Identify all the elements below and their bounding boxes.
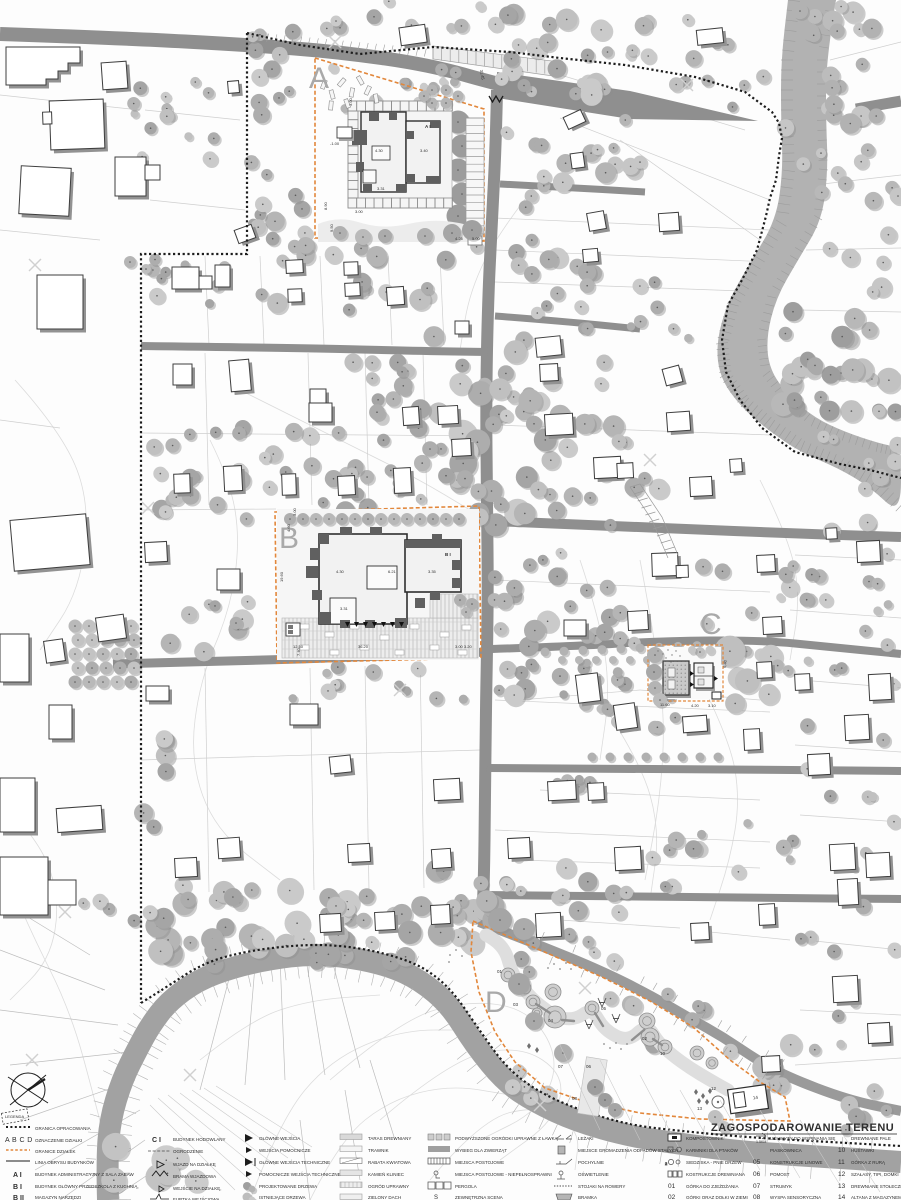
svg-text:4.30: 4.30 [375, 148, 384, 153]
svg-text:07: 07 [753, 1183, 761, 1190]
svg-text:KOSTRUKCJE DREWNIANA: KOSTRUKCJE DREWNIANA [686, 1172, 745, 1177]
svg-text:GÓRKA DO ZJEŻDŻANIA: GÓRKA DO ZJEŻDŻANIA [686, 1183, 739, 1189]
svg-text:SIEDZISKA - PNIE DRZEW: SIEDZISKA - PNIE DRZEW [686, 1160, 742, 1165]
svg-text:UCHWYTY DO WSPINANIA SIĘ: UCHWYTY DO WSPINANIA SIĘ [770, 1136, 835, 1141]
svg-text:GŁÓWNE WEJŚCIA TECHNICZNE: GŁÓWNE WEJŚCIA TECHNICZNE [259, 1158, 330, 1165]
svg-text:-1.00: -1.00 [330, 141, 340, 146]
svg-text:OŚWIETLENIE: OŚWIETLENIE [578, 1170, 609, 1177]
svg-text:ISTNIEJĄCE DRZEWA: ISTNIEJĄCE DRZEWA [259, 1195, 306, 1200]
svg-text:07: 07 [558, 1064, 564, 1069]
svg-text:LINIA OBRYSU BUDYNKÓW: LINIA OBRYSU BUDYNKÓW [35, 1159, 95, 1165]
svg-text:HUŚTAWKI: HUŚTAWKI [851, 1146, 874, 1153]
svg-text:OGRÓD UPRAWNY: OGRÓD UPRAWNY [368, 1183, 409, 1189]
svg-text:PERGOLA: PERGOLA [455, 1184, 477, 1189]
svg-text:OGRODZENIE: OGRODZENIE [173, 1149, 203, 1154]
svg-text:MIEJSCA POSTOJOWE: MIEJSCA POSTOJOWE [455, 1160, 504, 1165]
svg-text:BRAMA WJAZDOWA: BRAMA WJAZDOWA [173, 1174, 216, 1179]
svg-text:1.5KM: 1.5KM [756, 1140, 766, 1144]
svg-text:POMOCNICZE WEJŚCIA TECHNICZNE: POMOCNICZE WEJŚCIA TECHNICZNE [259, 1170, 341, 1177]
svg-text:STRUMYK: STRUMYK [770, 1184, 792, 1189]
svg-text:10: 10 [838, 1147, 846, 1154]
svg-text:C: C [700, 608, 722, 641]
svg-text:3.00 3.20: 3.00 3.20 [455, 644, 472, 649]
svg-text:POCHYLNIE: POCHYLNIE [578, 1160, 604, 1165]
svg-text:A: A [309, 62, 329, 95]
svg-text:B I: B I [13, 1184, 22, 1191]
svg-text:06: 06 [586, 1064, 592, 1069]
svg-text:MIEJSCE GROMADZENIA ODPADÓW ST: MIEJSCE GROMADZENIA ODPADÓW STAŁYCH [578, 1147, 678, 1153]
svg-text:7.40: 7.40 [296, 647, 301, 656]
svg-text:02: 02 [668, 1194, 676, 1200]
svg-text:A I: A I [13, 1172, 22, 1179]
svg-text:POMOST: POMOST [770, 1172, 790, 1177]
svg-text:A B C D: A B C D [5, 1137, 33, 1144]
svg-text:12: 12 [838, 1171, 846, 1178]
svg-text:ZIELONY DACH: ZIELONY DACH [368, 1195, 401, 1200]
svg-text:19.60: 19.60 [279, 571, 284, 582]
svg-text:ALTANA Z MAGAZYNEM: ALTANA Z MAGAZYNEM [851, 1195, 901, 1200]
svg-text:D: D [485, 986, 507, 1019]
svg-text:01: 01 [497, 969, 503, 974]
svg-text:08: 08 [753, 1194, 761, 1200]
svg-text:WJAZD NA DZIAŁKĘ: WJAZD NA DZIAŁKĘ [173, 1162, 216, 1167]
svg-text:13: 13 [697, 1106, 703, 1111]
svg-text:3.00: 3.00 [348, 97, 353, 106]
svg-text:PODWYŻSZONE OGRÓDKI UPRAWNE Z: PODWYŻSZONE OGRÓDKI UPRAWNE Z ŁAWKĄ [455, 1135, 559, 1141]
svg-text:PIASKOWNICA: PIASKOWNICA [770, 1148, 802, 1153]
svg-text:WYSPA SENSORYCZNA: WYSPA SENSORYCZNA [770, 1195, 821, 1200]
svg-text:5.00: 5.00 [472, 236, 481, 241]
svg-text:02: 02 [642, 1036, 648, 1041]
svg-text:B I: B I [445, 552, 451, 557]
svg-text:OZNACZENIE DZIAŁKI: OZNACZENIE DZIAŁKI [35, 1138, 82, 1143]
svg-text:3.00: 3.00 [292, 507, 297, 516]
svg-text:C I: C I [152, 1137, 161, 1144]
svg-text:3.31: 3.31 [377, 186, 386, 191]
svg-text:4.25: 4.25 [455, 236, 464, 241]
svg-text:WYBIEG DLA ZWIERZĄT: WYBIEG DLA ZWIERZĄT [455, 1148, 507, 1153]
svg-text:BUDYNEK HODOWLANY: BUDYNEK HODOWLANY [173, 1137, 226, 1142]
svg-text:4.30: 4.30 [336, 569, 345, 574]
svg-text:3.10: 3.10 [708, 703, 717, 708]
svg-text:LEŻAKI: LEŻAKI [578, 1135, 594, 1141]
svg-text:8.90: 8.90 [323, 201, 328, 210]
svg-text:08: 08 [572, 1096, 578, 1101]
svg-text:BUDYNEK ADMINISTRACYJNY Z SALA: BUDYNEK ADMINISTRACYJNY Z SALA ZABAW [35, 1172, 135, 1177]
svg-text:05: 05 [601, 1006, 607, 1011]
svg-text:KOMPOSTOWNIK: KOMPOSTOWNIK [686, 1136, 724, 1141]
svg-text:RABATA KWIATOWA: RABATA KWIATOWA [368, 1160, 411, 1165]
svg-text:03: 03 [513, 1002, 519, 1007]
svg-text:11: 11 [838, 1159, 845, 1166]
svg-text:3.40: 3.40 [420, 148, 429, 153]
svg-text:3.35: 3.35 [428, 569, 437, 574]
svg-text:A I: A I [425, 124, 431, 129]
svg-text:B II: B II [13, 1195, 24, 1200]
svg-text:12: 12 [711, 1086, 717, 1091]
svg-text:WEJŚCIA POMOCNICZE: WEJŚCIA POMOCNICZE [259, 1146, 311, 1153]
svg-text:GŁÓWNE WEJŚCIA: GŁÓWNE WEJŚCIA [259, 1134, 300, 1141]
svg-text:WEJŚCIE NA DZIAŁKĘ,: WEJŚCIE NA DZIAŁKĘ, [173, 1184, 222, 1191]
svg-text:KONSTRUKCJE LINOWE: KONSTRUKCJE LINOWE [770, 1160, 823, 1165]
svg-text:ZEWNĘTRZNA SCENA: ZEWNĘTRZNA SCENA [455, 1195, 503, 1200]
svg-text:MAGAZYN NARZĘDZI: MAGAZYN NARZĘDZI [35, 1195, 81, 1200]
svg-text:9.50: 9.50 [329, 223, 334, 232]
svg-text:MIEJSCA POSTOJOWE - NIEPEŁNOSP: MIEJSCA POSTOJOWE - NIEPEŁNOSPRAWNI [455, 1172, 552, 1177]
svg-text:05: 05 [753, 1159, 761, 1166]
svg-text:GÓRKA Z RURĄ: GÓRKA Z RURĄ [851, 1159, 886, 1165]
svg-text:ZAGOSPODAROWANIE TERENU: ZAGOSPODAROWANIE TERENU [711, 1122, 894, 1134]
svg-text:DREWNIANE STOŁECZKI: DREWNIANE STOŁECZKI [851, 1184, 901, 1189]
svg-text:S: S [434, 1195, 438, 1200]
svg-text:TRAWNIK: TRAWNIK [368, 1148, 389, 1153]
svg-text:36.20: 36.20 [358, 644, 369, 649]
svg-text:BUDYNEK GŁÓWNY PRZEDSZKOLA Z K: BUDYNEK GŁÓWNY PRZEDSZKOLA Z KUCHNIĄ, [35, 1183, 139, 1189]
svg-text:10: 10 [660, 1051, 666, 1056]
svg-text:SZAŁASY, TIPI, DOMKI: SZAŁASY, TIPI, DOMKI [851, 1172, 899, 1177]
svg-text:GRANICE DZIAŁEK: GRANICE DZIAŁEK [35, 1149, 76, 1154]
svg-text:6.21: 6.21 [388, 569, 397, 574]
svg-text:3.31: 3.31 [340, 606, 349, 611]
svg-text:PROJEKTOWANE DRZEWA: PROJEKTOWANE DRZEWA [259, 1184, 317, 1189]
svg-text:01: 01 [668, 1183, 676, 1190]
svg-text:TARAS DREWNIANY: TARAS DREWNIANY [368, 1136, 411, 1141]
svg-text:14: 14 [838, 1194, 846, 1200]
svg-text:STOJAKI NA ROWERY: STOJAKI NA ROWERY [578, 1184, 625, 1189]
svg-text:BRAMKA: BRAMKA [578, 1195, 597, 1200]
svg-text:13: 13 [838, 1183, 846, 1190]
svg-text:11.60: 11.60 [660, 702, 670, 707]
svg-text:3.00: 3.00 [355, 209, 364, 214]
svg-text:LEGENDA: LEGENDA [5, 1114, 24, 1119]
svg-text:4.20: 4.20 [691, 703, 700, 708]
svg-text:GÓRKI ORAZ DOŁKI W ZIEMI: GÓRKI ORAZ DOŁKI W ZIEMI [686, 1194, 748, 1200]
svg-text:6.40: 6.40 [722, 659, 728, 668]
svg-text:GRANICA OPRACOWANIA: GRANICA OPRACOWANIA [35, 1126, 91, 1131]
svg-text:KAMIEŃ KLINIEC: KAMIEŃ KLINIEC [368, 1171, 405, 1177]
svg-text:4.60: 4.60 [286, 523, 291, 532]
svg-text:06: 06 [753, 1171, 761, 1178]
svg-text:DREWNIANE PALE: DREWNIANE PALE [851, 1136, 891, 1141]
svg-text:04: 04 [548, 1018, 554, 1023]
svg-text:KARMNIKI DLA PTAKÓW: KARMNIKI DLA PTAKÓW [686, 1147, 739, 1153]
